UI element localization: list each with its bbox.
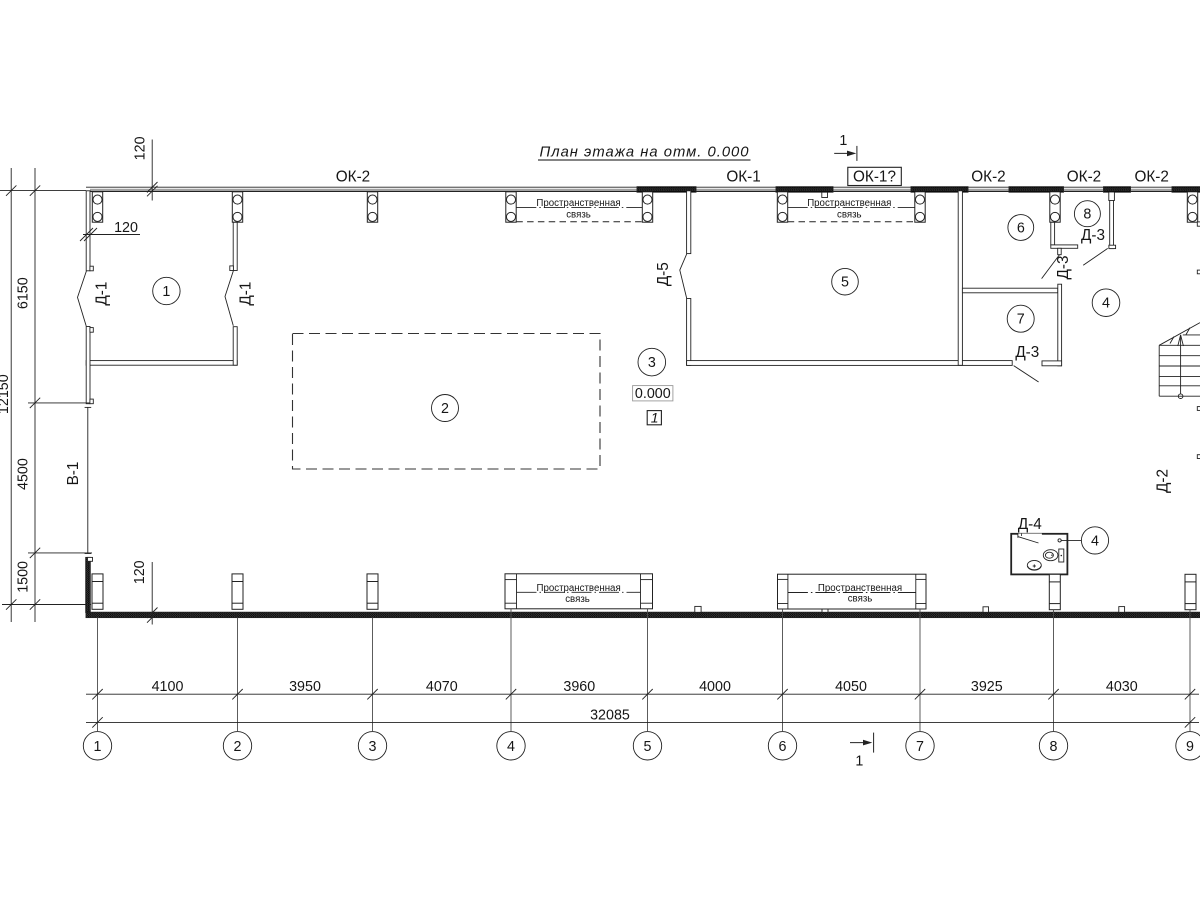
svg-text:связь: связь: [566, 210, 591, 221]
svg-text:5: 5: [644, 739, 652, 755]
svg-text:ОК-2: ОК-2: [1134, 169, 1168, 186]
svg-text:3925: 3925: [971, 679, 1003, 695]
svg-text:4030: 4030: [1106, 679, 1138, 695]
svg-text:8: 8: [1083, 207, 1091, 223]
svg-text:4500: 4500: [16, 458, 32, 490]
svg-text:Д-5: Д-5: [655, 262, 672, 286]
svg-text:5: 5: [841, 275, 849, 291]
svg-text:12150: 12150: [0, 374, 12, 414]
svg-text:4000: 4000: [699, 679, 731, 695]
svg-text:4070: 4070: [426, 679, 458, 695]
svg-text:связь: связь: [565, 594, 590, 605]
svg-text:Пространственная: Пространственная: [818, 583, 902, 594]
svg-text:32085: 32085: [590, 707, 630, 723]
svg-text:Пространственная: Пространственная: [807, 198, 891, 209]
svg-text:ОК-1: ОК-1: [726, 169, 760, 186]
svg-text:2: 2: [234, 739, 242, 755]
svg-text:6: 6: [779, 739, 787, 755]
svg-text:1: 1: [839, 133, 847, 149]
svg-text:4: 4: [1102, 296, 1110, 312]
svg-text:4: 4: [507, 739, 515, 755]
svg-text:Д-3: Д-3: [1055, 256, 1072, 280]
svg-text:План этажа на отм. 0.000: План этажа на отм. 0.000: [540, 145, 750, 161]
svg-text:Д-3: Д-3: [1015, 344, 1039, 361]
svg-text:Пространственная: Пространственная: [537, 583, 621, 594]
svg-text:7: 7: [916, 739, 924, 755]
svg-text:0.000: 0.000: [635, 386, 671, 402]
svg-text:1: 1: [855, 754, 863, 770]
svg-text:8: 8: [1050, 739, 1058, 755]
svg-text:ОК-2: ОК-2: [971, 169, 1005, 186]
svg-text:Д-4: Д-4: [1018, 516, 1042, 533]
svg-text:3960: 3960: [563, 679, 595, 695]
svg-text:связь: связь: [848, 594, 873, 605]
svg-text:ОК-2: ОК-2: [1067, 169, 1101, 186]
svg-text:2: 2: [441, 401, 449, 417]
svg-text:3: 3: [369, 739, 377, 755]
svg-text:ОК-1?: ОК-1?: [853, 168, 896, 185]
svg-text:120: 120: [132, 560, 148, 584]
svg-text:6: 6: [1017, 221, 1025, 237]
svg-text:В-1: В-1: [65, 462, 82, 486]
svg-text:1: 1: [651, 409, 659, 425]
svg-text:ОК-2: ОК-2: [336, 169, 370, 186]
svg-text:120: 120: [114, 220, 138, 236]
svg-text:связь: связь: [837, 210, 862, 221]
svg-text:Д-3: Д-3: [1081, 227, 1105, 244]
svg-text:4100: 4100: [152, 679, 184, 695]
svg-text:Пространственная: Пространственная: [536, 198, 620, 209]
svg-text:Д-1: Д-1: [238, 282, 255, 306]
svg-text:4: 4: [1091, 533, 1099, 549]
svg-text:7: 7: [1017, 312, 1025, 328]
svg-text:Д-2: Д-2: [1155, 469, 1172, 493]
svg-text:1: 1: [162, 284, 170, 300]
svg-text:1: 1: [94, 739, 102, 755]
svg-text:120: 120: [133, 136, 149, 160]
svg-text:Д-1: Д-1: [93, 282, 110, 306]
svg-text:9: 9: [1186, 739, 1194, 755]
svg-text:3950: 3950: [289, 679, 321, 695]
svg-text:1500: 1500: [16, 561, 32, 593]
svg-text:6150: 6150: [16, 277, 32, 309]
svg-text:4050: 4050: [835, 679, 867, 695]
svg-text:3: 3: [648, 355, 656, 371]
